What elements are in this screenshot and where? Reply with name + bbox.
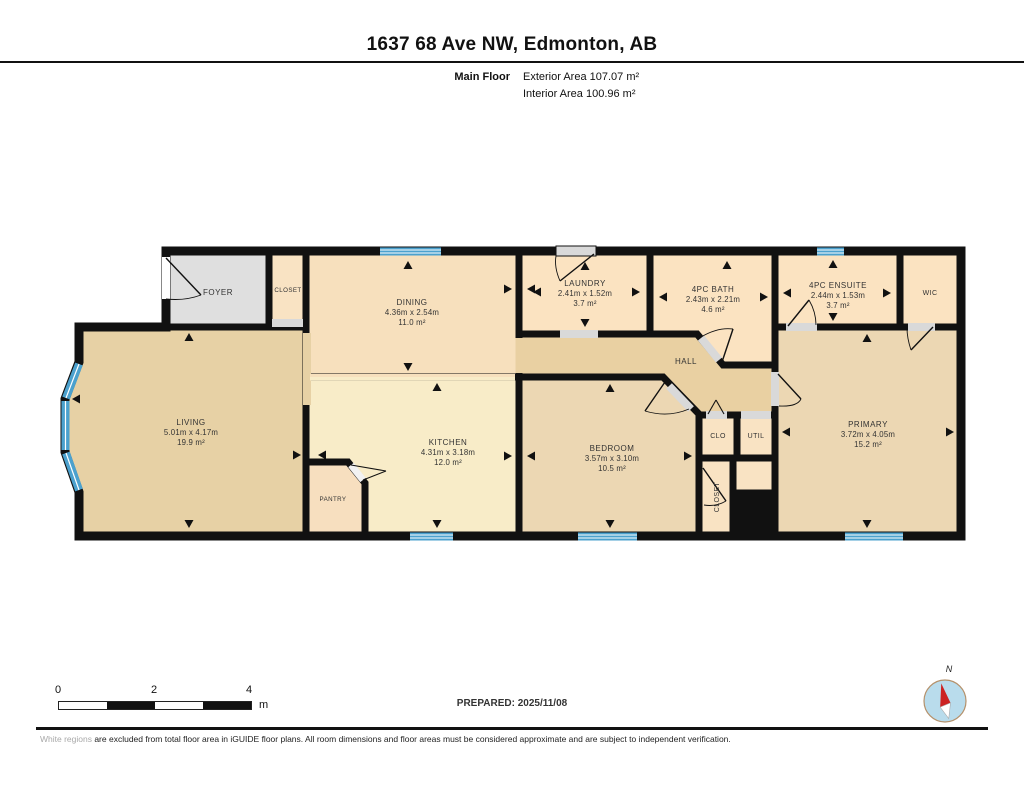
window [817, 248, 844, 256]
room-primary-area: 15.2 m² [854, 440, 882, 449]
room-foyer-label: FOYER [203, 288, 233, 297]
window [380, 248, 441, 256]
room-bath-label: 4PC BATH [692, 285, 735, 294]
void-area [733, 490, 775, 536]
scale-tick-4: 4 [246, 684, 252, 696]
room-laundry-area: 3.7 m² [573, 299, 596, 308]
room-ensuite-label: 4PC ENSUITE [809, 281, 867, 290]
room-bath-area: 4.6 m² [701, 305, 724, 314]
scale-tick-2: 2 [151, 684, 157, 696]
room-bedroom-area: 10.5 m² [598, 464, 626, 473]
room-primary-dims: 3.72m x 4.05m [841, 430, 895, 439]
window [410, 533, 453, 541]
room-clo-label: CLO [710, 433, 726, 440]
window [578, 533, 637, 541]
room-wic-label: WIC [923, 290, 938, 297]
room-closet-side-floor [733, 458, 775, 493]
room-laundry-label: LAUNDRY [564, 279, 606, 288]
room-laundry-dims: 2.41m x 1.52m [558, 289, 612, 298]
room-living-label: LIVING [176, 418, 205, 427]
floor-plan-page: 1637 68 Ave NW, Edmonton, AB Main Floor … [0, 0, 1024, 791]
disclaimer-text: White regions are excluded from total fl… [40, 734, 1000, 744]
room-ensuite-dims: 2.44m x 1.53m [811, 291, 865, 300]
room-hall-label: HALL [675, 357, 697, 366]
room-bedroom-dims: 3.57m x 3.10m [585, 454, 639, 463]
room-foyer-closet-label: CLOSET [274, 287, 301, 294]
disclaimer-rest: are excluded from total floor area in iG… [92, 734, 731, 744]
compass-north-label: N [946, 664, 953, 674]
room-wic-floor [900, 251, 961, 327]
compass-icon: N [924, 664, 966, 722]
room-bath-dims: 2.43m x 2.21m [686, 295, 740, 304]
footer-divider [36, 727, 988, 730]
room-bedroom-closet-label: CLOSET [714, 481, 721, 512]
room-dining-area: 11.0 m² [398, 318, 425, 327]
room-living-area: 19.9 m² [177, 438, 205, 447]
room-ensuite-area: 3.7 m² [826, 301, 849, 310]
scale-tick-0: 0 [55, 684, 61, 696]
room-living-dims: 5.01m x 4.17m [164, 428, 218, 437]
prepared-date: PREPARED: 2025/11/08 [0, 698, 1024, 709]
disclaimer-highlight: White regions [40, 734, 92, 744]
room-util-label: UTIL [748, 433, 765, 440]
room-bedroom-label: BEDROOM [590, 444, 635, 453]
room-kitchen-dims: 4.31m x 3.18m [421, 448, 475, 457]
room-pantry-label: PANTRY [320, 496, 347, 503]
floor-plan-drawing: LIVING 5.01m x 4.17m 19.9 m² FOYER CLOSE… [0, 0, 1024, 791]
room-kitchen-area: 12.0 m² [434, 458, 462, 467]
room-primary-label: PRIMARY [848, 420, 888, 429]
room-dining-dims: 4.36m x 2.54m [385, 308, 439, 317]
room-kitchen-label: KITCHEN [429, 438, 468, 447]
room-dining-label: DINING [397, 298, 428, 307]
window [845, 533, 903, 541]
